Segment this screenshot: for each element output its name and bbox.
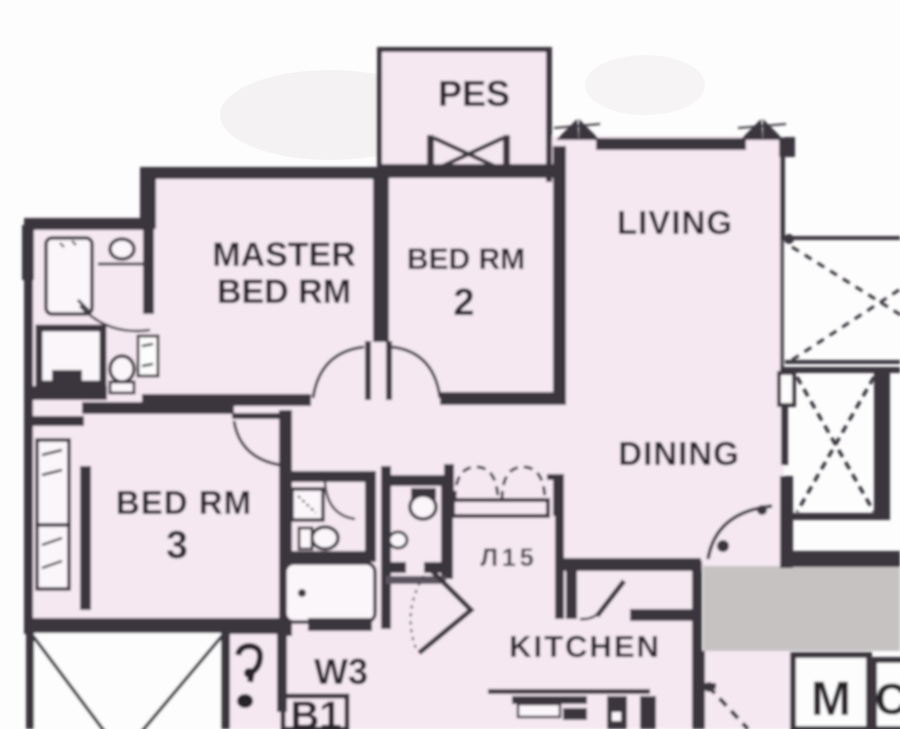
svg-text:2: 2	[453, 282, 474, 324]
svg-text:DINING: DINING	[618, 435, 740, 472]
svg-text:BED RM: BED RM	[116, 484, 252, 521]
svg-text:B1: B1	[290, 694, 341, 729]
svg-text:Л15: Л15	[480, 544, 537, 572]
svg-text:PES: PES	[438, 73, 510, 114]
svg-text:MASTER: MASTER	[212, 236, 356, 274]
svg-text:LIVING: LIVING	[617, 204, 733, 241]
svg-text:BED RM: BED RM	[217, 273, 351, 311]
svg-text:W3: W3	[314, 651, 368, 692]
svg-text:C: C	[875, 675, 900, 724]
svg-text:KITCHEN: KITCHEN	[509, 629, 661, 664]
svg-text:BED RM: BED RM	[407, 243, 525, 276]
svg-text:3: 3	[166, 524, 188, 567]
svg-text:M: M	[811, 673, 851, 726]
